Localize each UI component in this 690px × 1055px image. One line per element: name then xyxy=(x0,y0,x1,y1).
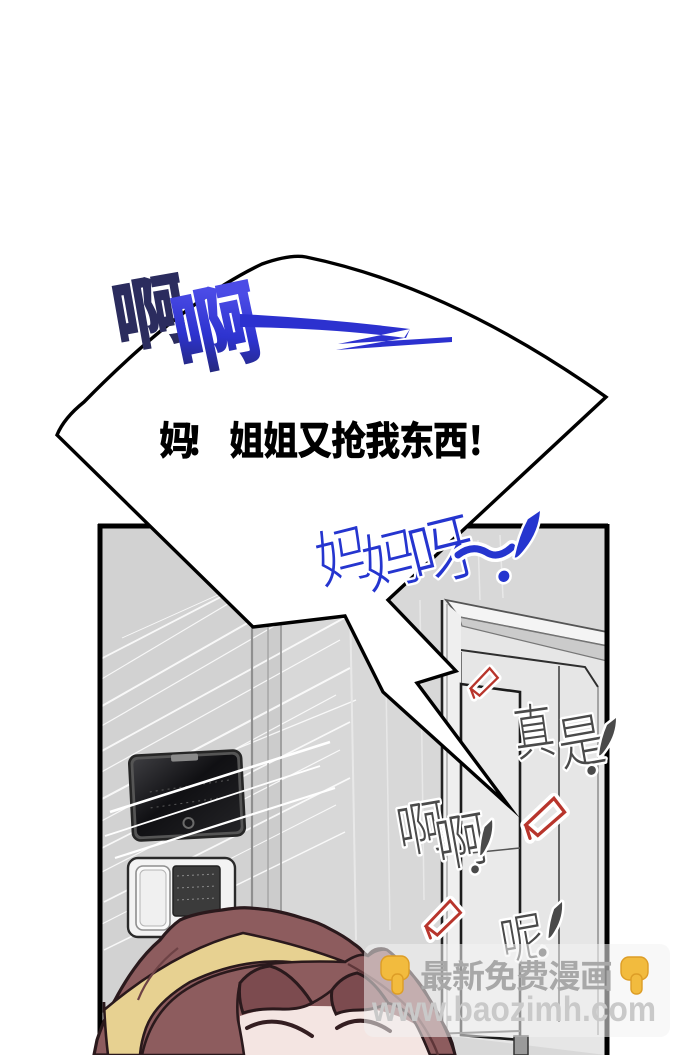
svg-text:www.baozimh.com: www.baozimh.com xyxy=(371,990,656,1029)
